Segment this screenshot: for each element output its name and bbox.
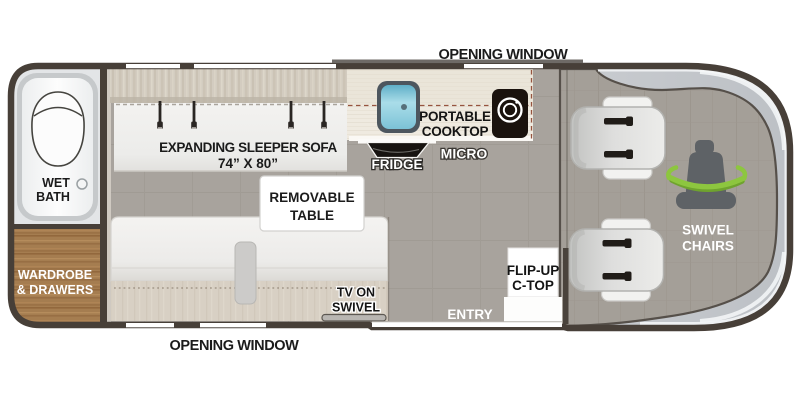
svg-text:REMOVABLE: REMOVABLE [269, 190, 354, 205]
svg-text:TV ON: TV ON [337, 286, 375, 300]
svg-text:OPENING WINDOW: OPENING WINDOW [170, 338, 300, 354]
svg-text:EXPANDING SLEEPER SOFA: EXPANDING SLEEPER SOFA [159, 140, 337, 155]
svg-text:ENTRY: ENTRY [447, 307, 492, 322]
svg-text:C-TOP: C-TOP [512, 278, 554, 293]
svg-text:SWIVEL: SWIVEL [682, 223, 734, 238]
svg-text:& DRAWERS: & DRAWERS [17, 283, 93, 297]
svg-text:COOKTOP: COOKTOP [422, 124, 489, 139]
svg-text:OPENING WINDOW: OPENING WINDOW [439, 47, 569, 63]
svg-text:CHAIRS: CHAIRS [682, 239, 734, 254]
svg-text:WARDROBE: WARDROBE [18, 268, 92, 282]
svg-text:74” X 80”: 74” X 80” [218, 156, 278, 171]
svg-text:WET: WET [42, 176, 70, 190]
svg-text:MICRO: MICRO [441, 146, 488, 162]
svg-text:BATH: BATH [36, 190, 70, 204]
svg-text:PORTABLE: PORTABLE [419, 109, 491, 124]
svg-text:TABLE: TABLE [290, 208, 334, 223]
svg-text:SWIVEL: SWIVEL [332, 301, 380, 315]
svg-text:FLIP-UP: FLIP-UP [507, 263, 560, 278]
svg-text:FRIDGE: FRIDGE [371, 157, 422, 172]
